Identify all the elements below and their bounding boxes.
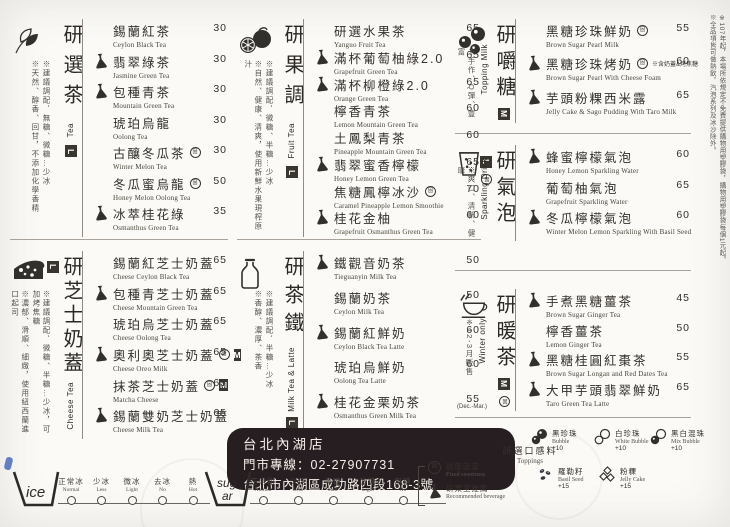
item-list: 黑糖珍珠鮮奶固 Brown Sugar Pearl Milk 55 黑糖珍珠烤奶… <box>515 19 691 123</box>
recommended-flask-icon <box>94 205 107 226</box>
item-name-zh: 黑糖珍珠鮮奶 <box>546 21 633 40</box>
legend-label-en: Fixed sweetness <box>446 472 485 478</box>
recommended-flask-icon <box>94 83 107 104</box>
menu-item-row: 錫蘭紅茶 Ceylon Black Tea 30 <box>96 21 228 52</box>
item-name-en: Cheese Oreo Milk <box>113 365 228 373</box>
note: ※建議調配．無糖、微糖…少冰 <box>41 60 51 236</box>
item-name-zh: 翡翠綠茶 <box>113 52 171 71</box>
item-name-en: Taro Green Tea Latte <box>546 400 691 408</box>
level-dot-icon <box>364 496 373 505</box>
menu-item-row: 奧利奧芝士奶蓋固M Cheese Oreo Milk 65 <box>96 345 228 376</box>
topping-black-pearl: 黑珍珠 Bubble +10 <box>531 428 578 452</box>
item-name-zh: 檸香青茶 <box>334 101 392 120</box>
item-name-zh: 冬瓜檸檬氣泡 <box>546 208 633 227</box>
level-dot-icon <box>329 496 338 505</box>
level-label-zh: 微冰 <box>117 476 147 487</box>
item-name-zh: 滿杯葡萄柚綠2.0 <box>334 48 444 67</box>
level-label-en: Less <box>87 487 117 493</box>
divider <box>455 270 691 271</box>
level-label-en: Less <box>283 487 313 493</box>
jelly-cake-icon <box>598 466 616 489</box>
item-name-zh: 錫蘭紅茶 <box>113 21 171 40</box>
item-name-en: Cheese Ceylon Black Tea <box>113 273 228 281</box>
recommended-flask-icon <box>315 156 328 177</box>
item-name-zh: 芋頭粉粿西米露 <box>546 88 648 107</box>
menu-item-row: 檸香薑茶 Lemon Ginger Tea 50 <box>529 321 691 351</box>
item-name-en: Cheese Oolong Tea <box>113 334 228 342</box>
item-name-en: Cheese Mountain Green Tea <box>113 304 228 312</box>
sugar-level: 微糖 Light <box>353 476 383 505</box>
level-label-zh: 無糖 <box>388 476 418 487</box>
item-name-en: Cheese Milk Tea <box>113 426 228 434</box>
menu-item-row: 冬瓜蜜烏龍固 Honey Melon Oolong Tea 50 <box>96 174 228 205</box>
item-name-zh: 黑糖珍珠烤奶 <box>546 54 633 73</box>
recommended-flask-icon <box>428 483 441 504</box>
menu-item-row: 黑糖桂圓紅棗茶 Brown Sugar Longan and Red Dates… <box>529 350 691 380</box>
menu-item-row: 大甲芋頭翡翠鮮奶 Taro Green Tea Latte 65 <box>529 380 691 410</box>
item-name-en: Brown Sugar Ginger Tea <box>546 311 691 319</box>
menu-item-row: 蜂蜜檸檬氣泡 Honey Lemon Sparkling Water 60 <box>529 147 691 178</box>
item-name-en: Mountain Green Tea <box>113 102 228 110</box>
item-name-zh: 研選水果茶 <box>334 21 407 40</box>
menu-item-row: 翡翠綠茶 Jasmine Green Tea 30 <box>96 52 228 83</box>
item-price: 65 <box>213 377 227 389</box>
item-name-zh: 包種青茶 <box>113 82 171 101</box>
section-title: 研暖茶 <box>493 294 515 372</box>
item-price: 60 <box>676 148 690 160</box>
recommended-flask-icon <box>527 292 540 313</box>
section-notes: ※建議調配．無糖、微糖…少冰 ※天然、醇香、回甘，不添加化學香精 <box>29 60 52 236</box>
svg-text:ar: ar <box>222 489 234 503</box>
divider <box>455 417 691 418</box>
section-title: 研芝士奶蓋 <box>60 256 82 376</box>
recommended-flask-icon <box>315 393 328 414</box>
item-name-en: Tieguanyin Milk Tea <box>334 273 481 281</box>
section-title: 研茶鐵 <box>281 256 303 340</box>
disclaimer-hot-drinks: ※全品項皆可做熱飲，汽泡系列及冰沙除外。 <box>707 14 717 272</box>
mix-pearls-icon <box>650 428 667 450</box>
ice-level: 少冰 Less <box>87 476 117 505</box>
section-title: 研氣泡 <box>493 150 515 228</box>
season-note: ※12-3月販售 <box>463 318 475 398</box>
sugar-level: 半糖 Half <box>318 476 348 505</box>
topping-white-pearl: 白珍珠 White Bubble +10 <box>594 428 649 452</box>
note: ※爽口、清新、健康 <box>456 166 476 242</box>
ice-scale: 正常冰 Normal 少冰 Less 微冰 Light 去冰 No <box>56 476 208 505</box>
section-header: 研茶鐵Milk Tea & LatteL ※建議調配．半糖…少冰 ※香醇、濃厚、… <box>237 246 303 432</box>
sugar-cup-icon: sugar <box>204 470 252 513</box>
item-name-zh: 抹茶芝士奶蓋 <box>113 376 200 395</box>
item-price: 30 <box>213 114 227 126</box>
item-name-zh: 琥珀烏芝士奶蓋 <box>113 314 215 333</box>
level-label-en: Normal <box>56 487 86 493</box>
section-warm-tea: 研暖茶M固 Winter only ※12-3月販售 (Dec.-Mar.) 手… <box>455 284 691 414</box>
level-dot-icon <box>67 496 76 505</box>
item-price: 65 <box>213 346 227 358</box>
item-price: 60 <box>676 55 690 67</box>
recommended-flask-icon <box>94 285 107 306</box>
sugar-scale: 正常甜 Normal 少糖 Less 半糖 Half 微糖 Light <box>248 476 418 505</box>
ice-level: 正常冰 Normal <box>56 476 86 505</box>
section-notes: ※建議調配．微糖、半糖…少冰，可加烤焦糖 ※濃郁、滑順、細緻，使用紐西蘭進口起司 <box>9 290 53 440</box>
level-dot-icon <box>128 496 137 505</box>
note: ※建議調配．微糖、半糖…少冰，可加烤焦糖 <box>31 290 51 440</box>
fixed-sweetness-icon: 固 <box>499 396 510 407</box>
section-fruit-tea: 研果調Fruit TeaL ※建議調配．微糖、半糖…少冰 ※自然、健康、清爽，使… <box>237 14 481 240</box>
item-name-en: Grapefruit Sparkling Water <box>546 198 691 206</box>
level-label-en: Half <box>318 487 348 493</box>
item-price: 65 <box>213 407 227 419</box>
level-label-en: Normal <box>248 487 278 493</box>
recommended-flask-icon <box>315 76 328 97</box>
item-price: 65 <box>676 89 690 101</box>
fixed-sweetness-icon: 固 <box>428 461 441 474</box>
svg-text:sug: sug <box>217 476 237 490</box>
legend-bracket <box>418 466 425 506</box>
section-cheese-tea: 研芝士奶蓋Cheese TeaL ※建議調配．微糖、半糖…少冰，可加烤焦糖 ※濃… <box>10 246 228 442</box>
menu-item-row: 琥珀烏龍 Oolong Tea 30 <box>96 113 228 144</box>
item-name-en: Jasmine Green Tea <box>113 72 228 80</box>
size-l-badge: L <box>65 145 77 157</box>
section-subtitle-en: Cheese Tea <box>67 382 75 430</box>
item-name-zh: 琥珀烏鮮奶 <box>334 357 407 376</box>
item-price: 30 <box>213 22 227 34</box>
legend-label-zh: 甜度固定 <box>446 461 485 472</box>
section-select-tea: 研選茶TeaL ※建議調配．無糖、微糖…少冰 ※天然、醇香、回甘，不添加化學香精… <box>10 14 228 240</box>
level-label-zh: 正常甜 <box>248 476 278 487</box>
level-dot-icon <box>97 496 106 505</box>
size-m-badge: M <box>498 108 510 120</box>
item-name-zh: 黑糖桂圓紅棗茶 <box>546 350 648 369</box>
menu-item-row: 包種青芝士奶蓋 Cheese Mountain Green Tea 65 <box>96 284 228 315</box>
item-name-zh: 奧利奧芝士奶蓋 <box>113 345 215 364</box>
item-price: 45 <box>676 292 690 304</box>
recommended-flask-icon <box>94 346 107 367</box>
level-label-zh: 去冰 <box>148 476 178 487</box>
legend-fixed-sweetness: 固 甜度固定 Fixed sweetness <box>428 461 505 478</box>
item-name-en: Brown Sugar Pearl Milk <box>546 41 691 49</box>
recommended-flask-icon <box>527 55 540 76</box>
fixed-sweetness-icon: 固 <box>190 178 201 189</box>
cheese-icon <box>12 258 46 289</box>
fixed-sweetness-icon: 固 <box>637 25 648 36</box>
item-name-en: Brown Sugar Pearl With Cheese Foam <box>546 74 691 82</box>
toppings-title-en: Toppings <box>497 457 563 465</box>
item-list: 錫蘭紅芝士奶蓋 Cheese Ceylon Black Tea 65 包種青芝士… <box>82 251 228 439</box>
item-name-zh: 桂花金柚 <box>334 208 392 227</box>
fixed-sweetness-icon: 固 <box>425 186 436 197</box>
item-price: 30 <box>213 83 227 95</box>
item-name-zh: 檸香薑茶 <box>546 321 604 340</box>
item-price: 65 <box>676 179 690 191</box>
recommended-flask-icon <box>315 209 328 230</box>
item-price: 35 <box>213 205 227 217</box>
note: ※12-3月販售 <box>464 318 474 398</box>
menu-item-row: 琥珀烏芝士奶蓋 Cheese Oolong Tea 65 <box>96 314 228 345</box>
level-dot-icon <box>294 496 303 505</box>
item-price: 30 <box>213 144 227 156</box>
section-title: 研果調 <box>281 24 303 114</box>
menu-item-row: 錫蘭紅芝士奶蓋 Cheese Ceylon Black Tea 65 <box>96 253 228 284</box>
section-notes: ※建議調配．微糖、半糖…少冰 ※自然、健康、清爽，使用新鮮水果現榨原汁 <box>242 60 275 236</box>
level-label-en: No <box>388 487 418 493</box>
menu-item-row: 黑糖珍珠鮮奶固 Brown Sugar Pearl Milk 55 <box>529 21 691 54</box>
item-name-zh: 琥珀烏龍 <box>113 113 171 132</box>
item-name-zh: 冬瓜蜜烏龍 <box>113 174 186 193</box>
size-l-badge: L <box>47 261 59 273</box>
recommended-flask-icon <box>315 49 328 70</box>
level-dot-icon <box>399 496 408 505</box>
item-name-zh: 手煮黑糖薑茶 <box>546 291 633 310</box>
menu-item-row: 錫蘭雙奶芝士奶蓋 Cheese Milk Tea 65 <box>96 406 228 437</box>
note: ※濃郁、滑順、細緻，使用紐西蘭進口起司 <box>10 290 30 440</box>
menu-item-row: 冬瓜檸檬氣泡 Winter Melon Lemon Sparkling With… <box>529 208 691 239</box>
note: ※建議調配．半糖…少冰 <box>264 290 274 430</box>
legend: 固 甜度固定 Fixed sweetness 研果室推薦 Recommended… <box>428 461 505 509</box>
section-title: 研嚼糖 <box>493 24 515 102</box>
item-name-en: Honey Lemon Sparkling Water <box>546 167 691 175</box>
item-name-zh: 包種青芝士奶蓋 <box>113 284 215 303</box>
item-name-zh: 鐵觀音奶茶 <box>334 253 407 272</box>
note: ※建議調配．微糖、半糖…少冰 <box>264 60 274 236</box>
item-list: 蜂蜜檸檬氣泡 Honey Lemon Sparkling Water 60 葡萄… <box>515 145 691 241</box>
item-name-zh: 焦糖鳳檸冰沙 <box>334 182 421 201</box>
item-name-en: Ceylon Black Tea <box>113 41 228 49</box>
size-l-badge: L <box>286 166 298 178</box>
topping-jelly-cake: 粉粿 Jelly Cake +15 <box>598 466 645 490</box>
section-subtitle-en: Winter only <box>473 318 491 398</box>
item-price: 50 <box>466 254 480 266</box>
sugar-level: 正常甜 Normal <box>248 476 278 505</box>
item-name-zh: 翡翠蜜香檸檬 <box>334 155 421 174</box>
item-price: 30 <box>213 53 227 65</box>
item-name-zh: 古釀冬瓜茶 <box>113 143 186 162</box>
item-name-en: Honey Melon Oolong Tea <box>113 194 228 202</box>
item-name-en: Jelly Cake & Sago Pudding With Taro Milk <box>546 108 691 116</box>
ink-mark <box>4 456 14 470</box>
divider <box>455 133 691 134</box>
item-name-zh: 桂花金栗奶茶 <box>334 392 421 411</box>
topping-basil-seed: 羅勒籽 Basil Seed +15 <box>537 466 584 490</box>
item-list: 手煮黑糖薑茶 Brown Sugar Ginger Tea 45 檸香薑茶 Le… <box>515 289 691 411</box>
item-price: 65 <box>213 254 227 266</box>
fixed-sweetness-icon: 固 <box>637 58 648 69</box>
note: ※手作、Q彈、豐富 <box>456 48 476 124</box>
white-pearls-icon <box>594 428 611 450</box>
recommended-flask-icon <box>527 89 540 110</box>
item-name-zh: 滿杯柳橙綠2.0 <box>334 75 430 94</box>
ice-level: 去冰 No <box>148 476 178 505</box>
menu-item-row: 鐵觀音奶茶 Tieguanyin Milk Tea 50 <box>317 253 481 288</box>
recommended-flask-icon <box>315 254 328 275</box>
section-sparkling: 研氣泡L固 Sparkling Drink ※爽口、清新、健康 蜂蜜檸檬氣泡 H… <box>455 140 691 244</box>
item-price: 55 <box>676 351 690 363</box>
item-name-en: Brown Sugar Longan and Red Dates Tea <box>546 370 691 378</box>
level-label-zh: 少冰 <box>87 476 117 487</box>
item-name-en: Winter Melon Lemon Sparkling With Basil … <box>546 228 691 236</box>
recommended-flask-icon <box>527 148 540 169</box>
recommended-flask-icon <box>527 209 540 230</box>
section-milk-tea-latte: 研茶鐵Milk Tea & LatteL ※建議調配．半糖…少冰 ※香醇、濃厚、… <box>237 246 481 432</box>
recommended-flask-icon <box>315 324 328 345</box>
fixed-sweetness-icon: 固 <box>190 147 201 158</box>
menu-item-row: 抹茶芝士奶蓋固M Matcha Cheese 65 <box>96 376 228 407</box>
tea-menu-page: 研選茶TeaL ※建議調配．無糖、微糖…少冰 ※天然、醇香、回甘，不添加化學香精… <box>0 0 730 527</box>
item-name-zh: 土鳳梨青茶 <box>334 128 407 147</box>
level-label-en: No <box>148 487 178 493</box>
note: ※自然、健康、清爽，使用新鮮水果現榨原汁 <box>243 60 263 236</box>
level-dot-icon <box>259 496 268 505</box>
level-label-zh: 半糖 <box>318 476 348 487</box>
item-price: 55 <box>676 22 690 34</box>
section-header: 研氣泡L固 Sparkling Drink ※爽口、清新、健康 <box>455 140 515 244</box>
item-price: 60 <box>676 209 690 221</box>
menu-item-row: 黑糖珍珠烤奶固※含奶蓋&烤焦糖 Brown Sugar Pearl With C… <box>529 54 691 87</box>
level-label-zh: 少糖 <box>283 476 313 487</box>
sugar-level: 少糖 Less <box>283 476 313 505</box>
disclaimer-bags: ※107年起，本場所依規定不免費提供購物用塑膠袋，購物用塑膠袋每個1元起。 <box>716 14 726 272</box>
section-subtitle-en: Sparkling Drink <box>475 158 493 244</box>
menu-item-row: 葡萄柚氣泡 Grapefruit Sparkling Water 65 <box>529 178 691 209</box>
season-en: (Dec.-Mar.) <box>457 404 487 410</box>
recommended-flask-icon <box>527 381 540 402</box>
recommended-flask-icon <box>94 407 107 428</box>
item-name-en: Osmanthus Green Tea <box>113 224 228 232</box>
section-subtitle-en: Fruit Tea <box>288 123 296 158</box>
item-name-zh: 錫蘭雙奶芝士奶蓋 <box>113 406 229 425</box>
item-price: 65 <box>676 381 690 393</box>
item-name-en: Matcha Cheese <box>113 396 228 404</box>
menu-item-row: 包種青茶 Mountain Green Tea 30 <box>96 82 228 113</box>
note: ※天然、醇香、回甘，不添加化學香精 <box>30 60 40 236</box>
item-price: 50 <box>676 322 690 334</box>
black-pearls-icon <box>531 428 548 450</box>
basil-seeds-icon <box>537 466 554 488</box>
recommended-flask-icon <box>527 351 540 372</box>
item-name-en: Winter Melon Tea <box>113 163 228 171</box>
menu-item-row: 芋頭粉粿西米露 Jelly Cake & Sago Pudding With T… <box>529 88 691 121</box>
section-header: 研選茶TeaL ※建議調配．無糖、微糖…少冰 ※天然、醇香、回甘，不添加化學香精 <box>10 14 82 240</box>
item-name-zh: 葡萄柚氣泡 <box>546 178 619 197</box>
legend-label-en: Recommended beverage <box>446 494 505 500</box>
menu-item-row: 冰萃桂花綠 Osmanthus Green Tea 35 <box>96 204 228 235</box>
section-header: 研果調Fruit TeaL ※建議調配．微糖、半糖…少冰 ※自然、健康、清爽，使… <box>237 14 303 240</box>
level-label-zh: 微糖 <box>353 476 383 487</box>
section-topping-milk: 研嚼糖M Topping Milk ※手作、Q彈、豐富 黑糖珍珠鮮奶固 Brow… <box>455 14 691 126</box>
sugar-level: 無糖 No <box>388 476 418 505</box>
citrus-icon <box>239 26 273 61</box>
section-header: 研芝士奶蓋Cheese TeaL ※建議調配．微糖、半糖…少冰，可加烤焦糖 ※濃… <box>10 246 82 442</box>
level-label-en: Light <box>117 487 147 493</box>
legend-label-zh: 研果室推薦 <box>446 483 505 494</box>
level-dot-icon <box>158 496 167 505</box>
section-notes: ※手作、Q彈、豐富 <box>455 48 477 124</box>
item-name-zh: 大甲芋頭翡翠鮮奶 <box>546 380 662 399</box>
section-subtitle-en: Tea <box>67 123 75 137</box>
item-name-en: Lemon Ginger Tea <box>546 341 691 349</box>
item-price: 65 <box>213 285 227 297</box>
legend-recommended: 研果室推薦 Recommended beverage <box>428 483 505 504</box>
item-price: 50 <box>213 175 227 187</box>
section-notes: ※爽口、清新、健康 <box>455 166 477 242</box>
size-l-badge: L <box>286 417 298 429</box>
ice-cup-icon: ice <box>12 470 60 513</box>
section-subtitle-en: Milk Tea & Latte <box>288 347 296 412</box>
item-name-zh: 錫蘭紅鮮奶 <box>334 323 407 342</box>
item-name-en: Oolong Tea <box>113 133 228 141</box>
item-name-zh: 錫蘭奶茶 <box>334 288 392 307</box>
section-title: 研選茶 <box>60 24 82 114</box>
side-disclaimer: ※107年起，本場所依規定不免費提供購物用塑膠袋，購物用塑膠袋每個1元起。 ※全… <box>707 14 727 272</box>
ice-level: 微冰 Light <box>117 476 147 505</box>
level-label-zh: 正常冰 <box>56 476 86 487</box>
item-list: 錫蘭紅茶 Ceylon Black Tea 30 翡翠綠茶 Jasmine Gr… <box>82 19 228 237</box>
item-note: ※含奶蓋&烤焦糖 <box>652 59 698 68</box>
level-dot-icon <box>189 496 198 505</box>
section-notes: ※建議調配．半糖…少冰 ※香醇、濃厚、茶香 <box>252 290 275 430</box>
item-price: 65 <box>213 315 227 327</box>
item-name-zh: 蜂蜜檸檬氣泡 <box>546 147 633 166</box>
recommended-flask-icon <box>94 53 107 74</box>
item-name-zh: 冰萃桂花綠 <box>113 204 186 223</box>
store-name: 台北內湖店 <box>243 433 499 453</box>
item-name-zh: 錫蘭紅芝士奶蓋 <box>113 253 215 272</box>
section-header: 研暖茶M固 Winter only ※12-3月販售 (Dec.-Mar.) <box>455 284 515 414</box>
note: ※香醇、濃厚、茶香 <box>253 290 263 430</box>
size-m-badge: M <box>498 378 510 390</box>
svg-text:ice: ice <box>26 484 45 501</box>
leaf-sprout-icon <box>12 26 42 61</box>
topping-mix-pearl: 黑白混珠 Mix Bubble +10 <box>650 428 705 452</box>
section-header: 研嚼糖M Topping Milk ※手作、Q彈、豐富 <box>455 14 515 126</box>
menu-item-row: 古釀冬瓜茶固 Winter Melon Tea 30 <box>96 143 228 174</box>
level-label-en: Light <box>353 487 383 493</box>
menu-item-row: 手煮黑糖薑茶 Brown Sugar Ginger Tea 45 <box>529 291 691 321</box>
section-subtitle-en: Topping Milk <box>475 44 493 124</box>
